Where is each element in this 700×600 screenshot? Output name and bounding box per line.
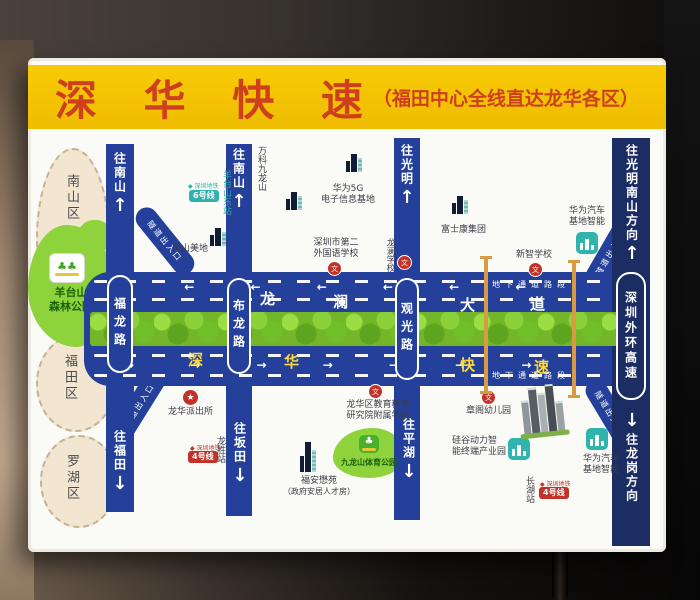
- huawei-5g-base-label: 华为5G 电子信息基地: [316, 184, 380, 207]
- power-cable: [552, 546, 568, 600]
- foxconn-label: 富士康集团: [441, 225, 486, 236]
- metro-line6-badge: 6号线: [189, 190, 219, 202]
- guanguang-road-capsule: 观光路: [395, 278, 419, 380]
- tunnel-marker-west: [484, 258, 488, 392]
- dir-to-futian: 往福田 ↓: [108, 430, 132, 493]
- zhangge-kindergarten-label: 章阁幼儿园: [466, 406, 511, 417]
- district-futian-label: 福田区: [60, 354, 79, 402]
- industry-park-icon: [576, 232, 598, 254]
- wall-top: [0, 0, 700, 66]
- dir-to-guangming-nanshan: 往光明南山方向 ↑: [620, 144, 644, 263]
- lightbox-sign: 深 华 快 速 （福田中心全线直达龙华各区） 南山区 福田区 罗湖区 ♣♣ 羊台…: [28, 58, 666, 552]
- sign-title: 深 华 快 速: [55, 67, 379, 128]
- metro-operator-line6: ◆ 深圳地铁: [188, 181, 219, 190]
- road-char-long: 龙: [260, 288, 275, 309]
- up-arrow-icon: ↑: [112, 197, 127, 215]
- jiulongshan-park-label: 九龙山体育公园: [335, 458, 403, 468]
- park-tree-icon: ♣: [359, 435, 379, 453]
- road-char-kuai: 快: [460, 354, 475, 375]
- wall-right: [664, 0, 700, 600]
- district-nanshan-label: 南山区: [62, 174, 81, 222]
- silicon-valley-park-label: 硅谷动力智 能终端产业园: [452, 436, 506, 459]
- road-char-lan: 澜: [333, 291, 348, 312]
- apartment-buildings-image: [520, 383, 566, 435]
- tunnel-section-label-bottom: 地下通道路段: [492, 370, 570, 381]
- xinzhi-school-label: 新智学校: [516, 250, 552, 261]
- road-char-hua: 华: [284, 351, 299, 372]
- dir-to-guangming: 往光明 ↑: [395, 144, 419, 207]
- school-badge-icon: 文: [398, 256, 411, 269]
- dir-to-bantian: 往坂田 ↓: [228, 422, 252, 485]
- road-char-da: 大: [460, 294, 475, 315]
- police-station-label: 龙华派出所: [168, 407, 213, 418]
- dir-to-longgang: ↓ 往龙岗方向: [620, 412, 644, 503]
- down-arrow-icon: ↓: [112, 475, 127, 493]
- down-arrow-icon: ↓: [401, 463, 416, 481]
- industry-park-icon: [586, 428, 608, 450]
- sign-subtitle: （福田中心全线直达龙华各区）: [373, 84, 639, 111]
- school-badge-icon: 文: [529, 263, 542, 276]
- road-char-dao: 道: [530, 293, 545, 314]
- fuan-housing-label: 福安懋苑 （政府安居人才房）: [266, 476, 372, 497]
- school-badge-icon: 文: [328, 262, 341, 275]
- building-icon: [286, 192, 302, 210]
- up-arrow-icon: ↑: [624, 245, 639, 263]
- route-map: 南山区 福田区 罗湖区 ♣♣ 羊台山 森林公园 隧道出入口 隧道出入口 隧道出入…: [28, 130, 666, 546]
- longlan-school-label: 龙澜学校: [384, 238, 396, 272]
- tunnel-marker-east: [572, 262, 576, 396]
- metro-logo-icon: ◆: [188, 183, 193, 190]
- school-badge-icon: 文: [369, 385, 382, 398]
- vanke-jiulongshan-label: 万科九龙山: [255, 146, 268, 191]
- bulong-road-capsule: 布龙路: [227, 278, 251, 374]
- up-arrow-icon: ↑: [231, 193, 246, 211]
- lane-arrows-west-icon: ← ← ← ← ← ← ←: [118, 280, 525, 294]
- dir-to-nanshan-fulong: 往南山 ↑: [109, 152, 131, 215]
- metro-line4-badge: 4号线: [539, 487, 569, 499]
- fulong-road-capsule: 福龙路: [107, 275, 133, 373]
- police-star-icon: ★: [183, 390, 198, 405]
- ramp-northwest: 隧道出入口: [131, 203, 198, 279]
- district-luohu-label: 罗湖区: [62, 454, 81, 502]
- dir-to-nanshan-bulong: 往南山 ↑: [227, 148, 251, 211]
- second-foreign-language-school-label: 深圳市第二 外国语学校: [306, 238, 366, 261]
- down-arrow-icon: ↓: [624, 412, 639, 430]
- huawei-auto-base-label-north: 华为汽车 基地智能: [558, 206, 616, 229]
- road-char-shen: 深: [188, 349, 203, 370]
- tree-base: [55, 273, 79, 276]
- building-icon: [452, 196, 468, 214]
- wall-bottom: [0, 550, 700, 600]
- building-icon: [210, 228, 226, 246]
- dir-to-pinghu: 往平湖 ↓: [397, 418, 421, 481]
- up-arrow-icon: ↑: [399, 189, 414, 207]
- building-icon: [346, 154, 362, 172]
- down-arrow-icon: ↓: [232, 467, 247, 485]
- outer-ring-capsule: 深圳外环高速: [616, 272, 646, 400]
- tunnel-section-label-top: 地下通道路段: [492, 279, 570, 290]
- title-banner: 深 华 快 速 （福田中心全线直达龙华各区）: [28, 65, 666, 129]
- tree-glyphs: ♣♣: [57, 261, 77, 272]
- longsheng-station-label: 龙胜站: [214, 436, 227, 463]
- photo-scene: 深 华 快 速 （福田中心全线直达龙华各区） 南山区 福田区 罗湖区 ♣♣ 羊台…: [0, 0, 700, 600]
- changhu-station-label: 长湖站: [523, 476, 536, 503]
- green-median: [90, 312, 630, 346]
- industry-park-icon: [508, 438, 530, 460]
- building-icon: [300, 442, 316, 472]
- youshanmeidi-label: 优山美地: [172, 244, 208, 255]
- park-tree-icon: ♣♣: [50, 254, 84, 282]
